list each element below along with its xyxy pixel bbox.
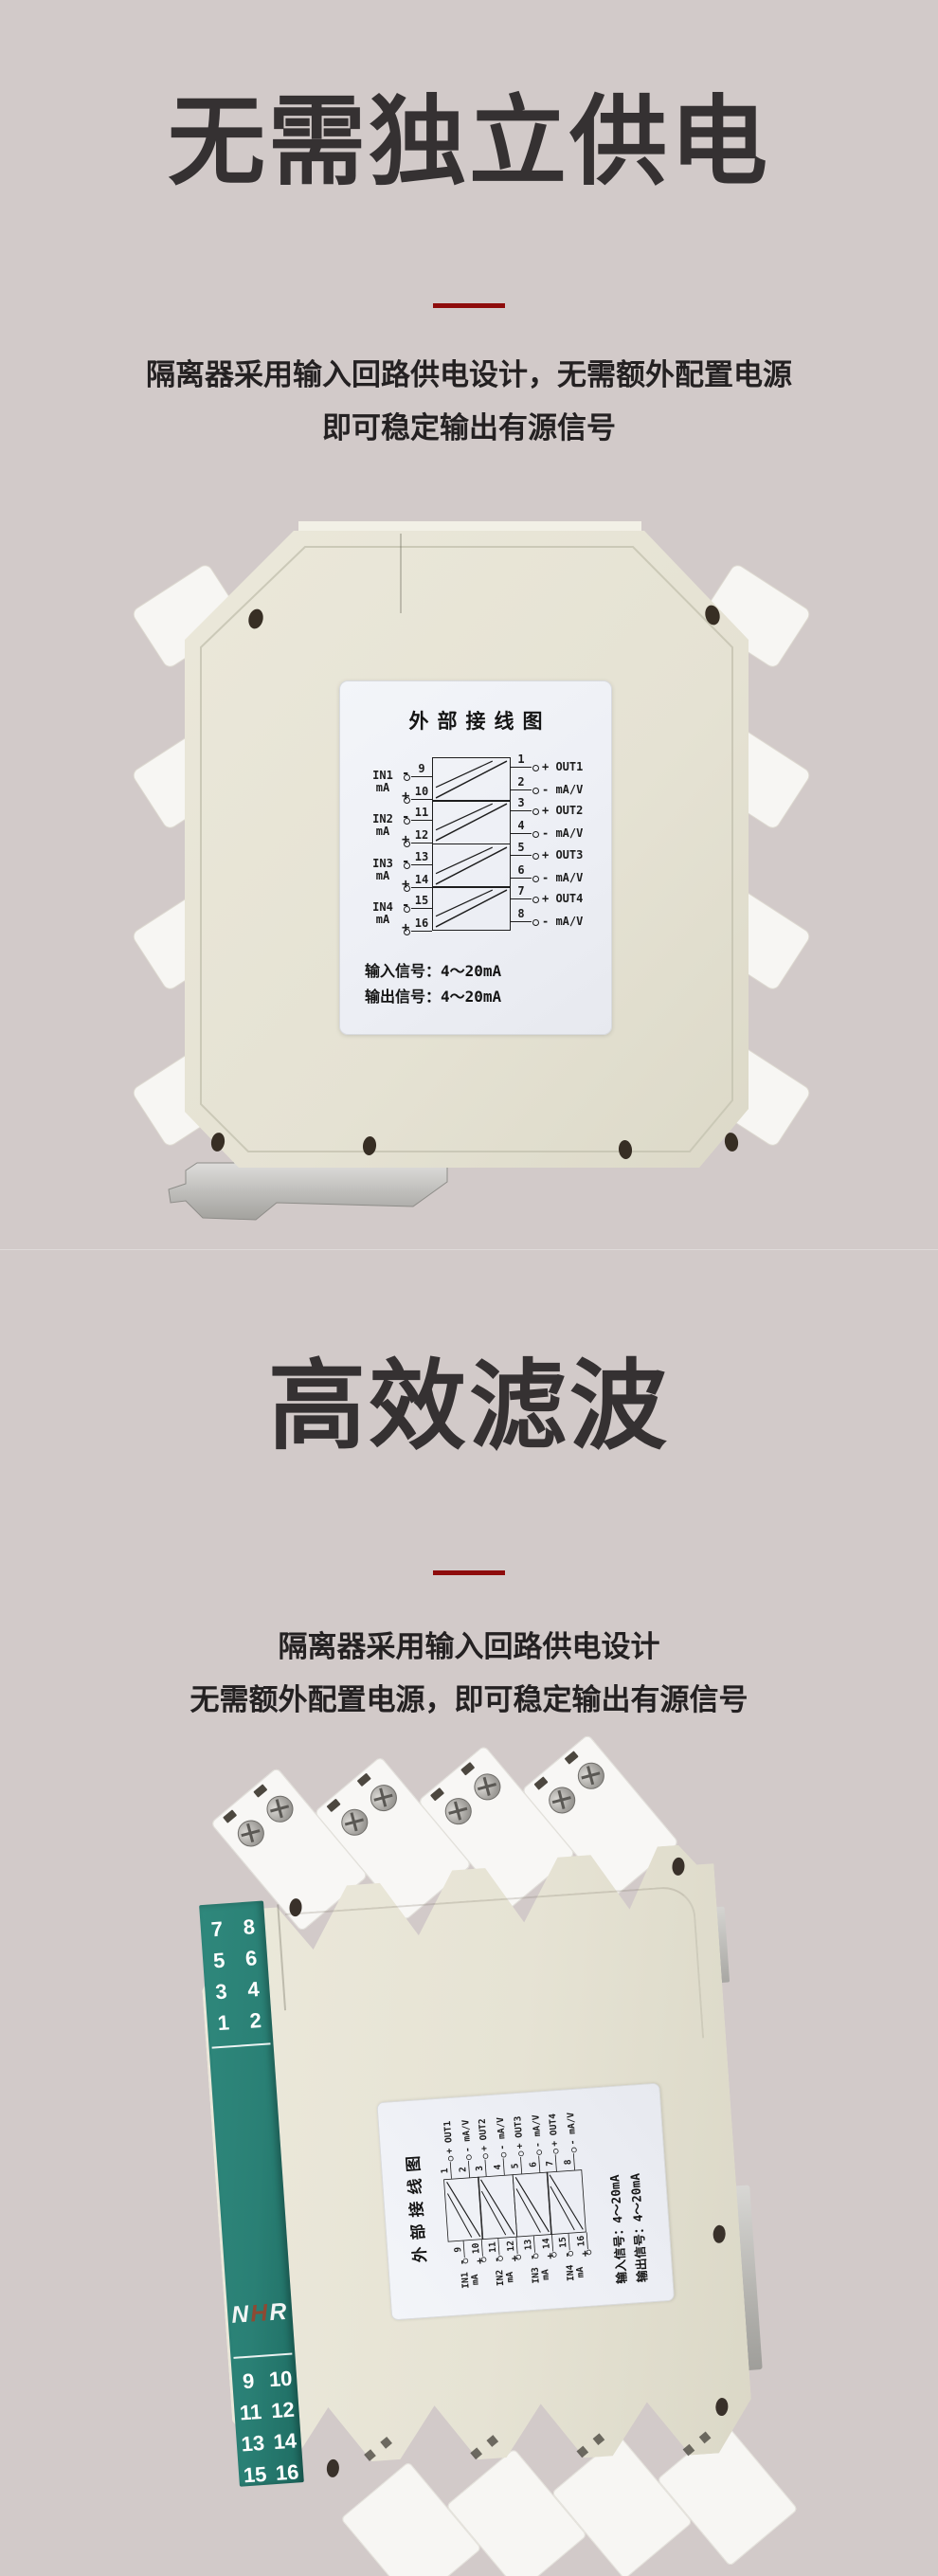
input-signal-spec: 输入信号：4～20mA: [365, 958, 611, 984]
channel-row-1: IN1mA - + 9 10 1 2 + OUT1 - mA/V: [366, 757, 586, 803]
terminal-number: 8: [517, 907, 524, 920]
terminal-number: 11: [487, 2241, 498, 2253]
input-label: IN3mA: [530, 2260, 551, 2289]
red-divider-1: [433, 303, 505, 308]
output-label: + OUT2: [542, 804, 583, 817]
terminal-number: 10: [415, 785, 428, 798]
terminal-block-bottom: [551, 2435, 693, 2576]
terminal-number: 10: [268, 2367, 293, 2393]
output-label: + OUT2: [477, 2118, 490, 2151]
input-wire: 9: [463, 2240, 465, 2258]
terminal-number: 6: [528, 2162, 539, 2168]
strip-divider-line: [211, 2042, 270, 2048]
terminal-number: 2: [457, 2167, 468, 2173]
output-wire: 1: [511, 767, 532, 768]
input-label: IN3mA: [366, 858, 400, 882]
terminal-number: 12: [270, 2398, 295, 2424]
section1-title: 无需独立供电: [0, 91, 938, 193]
terminal-screw-icon: [262, 1790, 298, 1827]
output-signal-spec: 输出信号：4～20mA: [365, 984, 611, 1009]
output-label: + OUT1: [542, 760, 583, 773]
terminal-number: 15: [243, 2462, 267, 2489]
output-label: - mA/V: [531, 2114, 544, 2148]
output-wire: 6: [511, 878, 532, 879]
terminal-number: 6: [244, 1946, 258, 1971]
section1-desc-line2: 即可稳定输出有源信号: [0, 402, 938, 455]
terminal-number: 12: [415, 828, 428, 842]
terminal-number: 4: [517, 819, 524, 832]
output-wire: 4: [503, 2158, 505, 2175]
wire-slot: [223, 1809, 237, 1823]
terminal-number: 13: [415, 850, 428, 863]
output-label: - mA/V: [542, 871, 583, 884]
terminal-number: 3: [215, 1979, 228, 2005]
product-photo-front: 外部接线图: [133, 498, 810, 1232]
input-label: IN2mA: [366, 813, 400, 838]
input-label: IN1mA: [366, 770, 400, 794]
terminal-number: 9: [242, 2368, 255, 2394]
output-wire: 3: [485, 2160, 487, 2177]
terminal-screw-icon: [543, 1782, 580, 1819]
input-wire: 15: [568, 2234, 570, 2251]
output-wire: 1: [450, 2162, 452, 2179]
terminal-number: 15: [415, 894, 428, 907]
output-label: - mA/V: [495, 2117, 508, 2150]
output-wire: 5: [511, 855, 532, 856]
input-wire: 11: [497, 2239, 499, 2256]
terminal-number: 7: [544, 2160, 555, 2167]
input-label: IN1mA: [460, 2266, 481, 2295]
input-wire: 13: [411, 864, 432, 865]
output-label: + OUT4: [542, 892, 583, 905]
wiring-diagram: IN1mA - + 9 10 1 2 + OUT1 - mA/V IN2mA -…: [438, 2110, 595, 2295]
terminal-number: 5: [212, 1949, 225, 1974]
isolator-side-body: 78 56 34 12 NHR 910 1112 1314 1516 外部接线图: [176, 1739, 791, 2576]
brand-logo: NHR: [226, 2297, 293, 2330]
terminal-screw-icon: [232, 1815, 269, 1852]
terminal-number: 13: [522, 2239, 533, 2250]
output-wire: 4: [511, 833, 532, 834]
terminal-number: 7: [517, 884, 524, 898]
section2-desc-line1: 隔离器采用输入回路供电设计: [0, 1621, 938, 1674]
terminal-number: 2: [517, 775, 524, 789]
wire-slot: [565, 1751, 579, 1764]
section-seam: [0, 1249, 938, 1250]
screw-hole: [326, 2458, 339, 2477]
terminal-number: 7: [210, 1917, 224, 1943]
wire-slot: [357, 1773, 371, 1787]
terminal-number: 5: [517, 841, 524, 854]
terminal-number: 1: [217, 2010, 230, 2036]
terminal-block-bottom: [657, 2422, 798, 2567]
wiring-label: 外部接线图: [339, 680, 612, 1035]
input-wire: 16: [411, 931, 432, 932]
section1-desc-line1: 隔离器采用输入回路供电设计，无需额外配置电源: [0, 349, 938, 402]
promo-page: 无需独立供电 隔离器采用输入回路供电设计，无需额外配置电源 即可稳定输出有源信号: [0, 0, 938, 2576]
section2-title: 高效滤波: [0, 1355, 938, 1458]
terminal-number: 5: [510, 2163, 521, 2169]
output-wire: 6: [538, 2156, 540, 2173]
output-wire: 2: [468, 2161, 470, 2178]
wiring-label: 外部接线图: [376, 2083, 675, 2321]
terminal-screw-icon: [572, 1757, 609, 1794]
terminal-number: 4: [492, 2164, 503, 2170]
terminal-number: 10: [470, 2242, 481, 2254]
signal-specs: 输入信号：4～20mA 输出信号：4～20mA: [340, 958, 611, 1009]
terminal-number: 2: [249, 2008, 262, 2034]
input-wire: 15: [411, 908, 432, 909]
output-wire: 8: [511, 921, 532, 922]
groove-line: [285, 1885, 704, 2067]
terminal-number: 12: [505, 2240, 516, 2252]
output-label: - mA/V: [542, 826, 583, 840]
terminal-screw-icon: [440, 1792, 477, 1829]
output-wire: 7: [511, 898, 532, 899]
input-label: IN4mA: [565, 2259, 586, 2287]
terminal-screw-icon: [469, 1769, 506, 1805]
wire-slot: [430, 1787, 444, 1801]
wire-slot: [327, 1799, 341, 1812]
channel-row-3: IN3mA - + 13 14 5 6 + OUT3 - mA/V: [366, 845, 586, 891]
terminal-number: 13: [241, 2431, 265, 2458]
output-wire: 8: [573, 2153, 575, 2170]
output-label: + OUT4: [547, 2113, 560, 2147]
terminal-number: 9: [452, 2246, 463, 2253]
terminal-number: 1: [517, 753, 524, 766]
terminal-number: 6: [517, 863, 524, 877]
terminal-screw-icon: [336, 1804, 373, 1841]
input-wire: 16: [586, 2232, 588, 2249]
output-label: - mA/V: [460, 2119, 473, 2152]
terminal-number: 8: [562, 2159, 573, 2166]
terminal-number: 3: [517, 796, 524, 809]
output-wire: 7: [555, 2154, 557, 2171]
terminal-number: 16: [575, 2235, 586, 2246]
output-wire: 5: [520, 2157, 522, 2174]
terminal-number: 4: [246, 1977, 260, 2003]
strip-divider-line: [233, 2353, 292, 2359]
output-wire: 2: [511, 789, 532, 790]
signal-specs: 输入信号：4～20mA 输出信号：4～20mA: [598, 2085, 654, 2304]
terminal-number: 14: [540, 2238, 551, 2249]
wire-slot: [253, 1784, 267, 1797]
input-wire: 13: [533, 2236, 535, 2253]
output-label: - mA/V: [542, 915, 583, 928]
terminal-number: 15: [557, 2237, 568, 2248]
input-wire: 10: [411, 799, 432, 800]
output-wire: 3: [511, 810, 532, 811]
terminal-number: 3: [474, 2166, 485, 2172]
input-wire: 14: [411, 887, 432, 888]
terminal-number: 11: [415, 806, 428, 819]
terminal-number: 14: [273, 2428, 298, 2455]
channel-row-2: IN2mA - + 11 12 3 4 + OUT2 - mA/V: [366, 801, 586, 846]
terminal-number: 11: [239, 2400, 262, 2426]
side-terminal-numbers-bottom: 910 1112 1314 1516: [231, 2366, 304, 2488]
input-wire: 12: [411, 843, 432, 844]
output-label: + OUT3: [542, 848, 583, 862]
section2-desc-line2: 无需额外配置电源，即可稳定输出有源信号: [0, 1674, 938, 1727]
terminal-screw-icon: [365, 1779, 402, 1816]
channel-row-4: IN4mA - + 15 16 7 8 + OUT4 - mA/V: [366, 889, 586, 934]
terminal-number: 8: [243, 1914, 256, 1940]
output-label: + OUT3: [512, 2115, 525, 2149]
output-label: - mA/V: [542, 783, 583, 796]
section2-description: 隔离器采用输入回路供电设计 无需额外配置电源，即可稳定输出有源信号: [0, 1621, 938, 1727]
side-terminal-numbers-top: 78 56 34 12: [200, 1914, 273, 2036]
wiring-diagram: IN1mA - + 9 10 1 2 + OUT1 - mA/V IN2mA -…: [366, 755, 586, 937]
red-divider-2: [433, 1570, 505, 1575]
terminal-number: 1: [439, 2168, 450, 2174]
input-label: IN4mA: [366, 901, 400, 926]
wiring-label-title: 外部接线图: [340, 681, 611, 735]
section1-description: 隔离器采用输入回路供电设计，无需额外配置电源 即可稳定输出有源信号: [0, 349, 938, 455]
wire-slot: [533, 1776, 548, 1789]
din-rail-clip: [169, 1163, 447, 1220]
input-label: IN2mA: [495, 2263, 516, 2292]
product-photo-side: 78 56 34 12 NHR 910 1112 1314 1516 外部接线图: [204, 1758, 763, 2575]
input-wire: 11: [411, 820, 432, 821]
wire-slot: [460, 1762, 475, 1775]
output-label: - mA/V: [565, 2112, 578, 2145]
terminal-number: 14: [415, 873, 428, 886]
terminal-number: 9: [418, 762, 424, 775]
input-wire: 9: [411, 776, 432, 777]
terminal-number: 16: [275, 2459, 299, 2486]
terminal-number: 16: [415, 916, 428, 930]
output-label: + OUT1: [442, 2120, 455, 2153]
